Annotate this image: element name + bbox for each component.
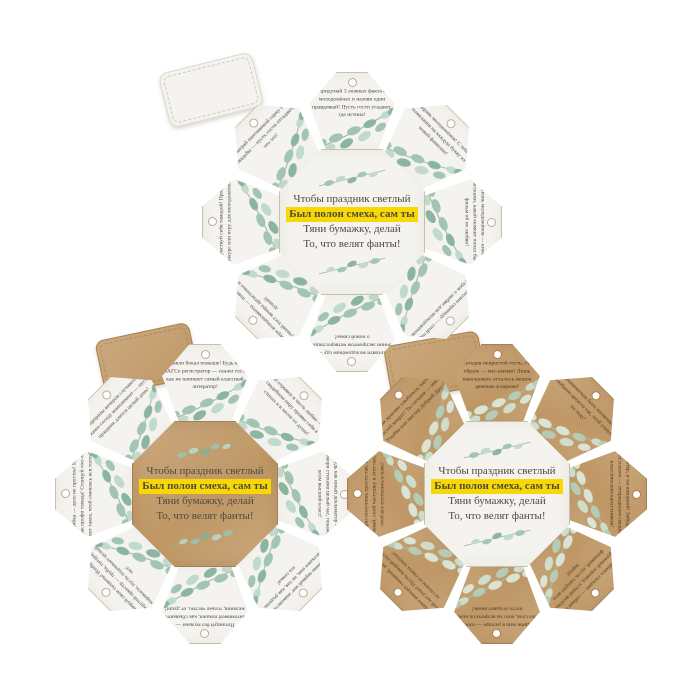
- tag-hole: [353, 490, 362, 499]
- eucalyptus-branch-icon: [451, 376, 543, 426]
- eucalyptus-branch-icon: [234, 176, 284, 268]
- verse-line-4: То, что велят фанты!: [431, 509, 562, 524]
- tag-hole: [632, 490, 641, 499]
- verse-line-2: Был полон смеха, сам ты: [286, 207, 417, 222]
- verse-line-2-highlight: Был полон смеха, сам ты: [431, 479, 562, 494]
- eucalyptus-sprig-icon: [461, 438, 533, 462]
- verse-line-1: Чтобы праздник светлый: [286, 192, 417, 207]
- tag-hole: [348, 78, 357, 87]
- verse-line-2-highlight: Был полон смеха, сам ты: [286, 207, 417, 222]
- verse-line-4: То, что велят фанты!: [286, 237, 417, 252]
- verse-line-1: Чтобы праздник светлый: [139, 464, 270, 479]
- verse-line-2: Был полон смеха, сам ты: [431, 479, 562, 494]
- tag-hole: [61, 490, 70, 499]
- verse-line-3: Тяни бумажку, делай: [431, 494, 562, 509]
- verse-line-1: Чтобы праздник светлый: [431, 464, 562, 479]
- tag-hole: [493, 350, 502, 359]
- center-octagon: Чтобы праздник светлый Был полон смеха, …: [279, 149, 425, 295]
- tag-hole: [493, 629, 502, 638]
- eucalyptus-sprig-icon: [316, 254, 388, 278]
- eucalyptus-branch-icon: [565, 448, 615, 540]
- tag-hole: [348, 357, 357, 366]
- printable-fanty-sheet: Придумай 3 ложных факта о молодожёнах и …: [0, 0, 700, 700]
- task-text: Почувствуй себя тамадой! Проведи конкурс…: [217, 179, 233, 266]
- eucalyptus-branch-icon: [379, 448, 429, 540]
- tag-hole: [208, 218, 217, 227]
- verse-line-2-highlight: Был полон смеха, сам ты: [139, 479, 270, 494]
- eucalyptus-sprig-icon: [316, 166, 388, 190]
- tag-hole: [487, 218, 496, 227]
- center-octagon: Чтобы праздник светлый Был полон смеха, …: [424, 421, 570, 567]
- verse-line-3: Тяни бумажку, делай: [139, 494, 270, 509]
- center-octagon: Чтобы праздник светлый Был полон смеха, …: [132, 421, 278, 567]
- verse-line-3: Тяни бумажку, делай: [286, 222, 417, 237]
- center-verse: Чтобы праздник светлый Был полон смеха, …: [431, 464, 562, 523]
- eucalyptus-branch-icon: [159, 376, 251, 426]
- eucalyptus-branch-icon: [306, 290, 398, 340]
- tag-hole: [201, 350, 210, 359]
- verse-line-4: То, что велят фанты!: [139, 509, 270, 524]
- eucalyptus-branch-icon: [306, 104, 398, 154]
- verse-line-2: Был полон смеха, сам ты: [139, 479, 270, 494]
- eucalyptus-branch-icon: [273, 448, 323, 540]
- eucalyptus-branch-icon: [451, 562, 543, 612]
- eucalyptus-sprig-icon: [461, 526, 533, 550]
- eucalyptus-branch-icon: [420, 176, 470, 268]
- eucalyptus-branch-icon: [87, 448, 137, 540]
- eucalyptus-sprig-icon: [169, 526, 241, 550]
- eucalyptus-branch-icon: [159, 562, 251, 612]
- eucalyptus-sprig-icon: [169, 438, 241, 462]
- center-verse: Чтобы праздник светлый Был полон смеха, …: [139, 464, 270, 523]
- tag-hole: [201, 629, 210, 638]
- center-verse: Чтобы праздник светлый Был полон смеха, …: [286, 192, 417, 251]
